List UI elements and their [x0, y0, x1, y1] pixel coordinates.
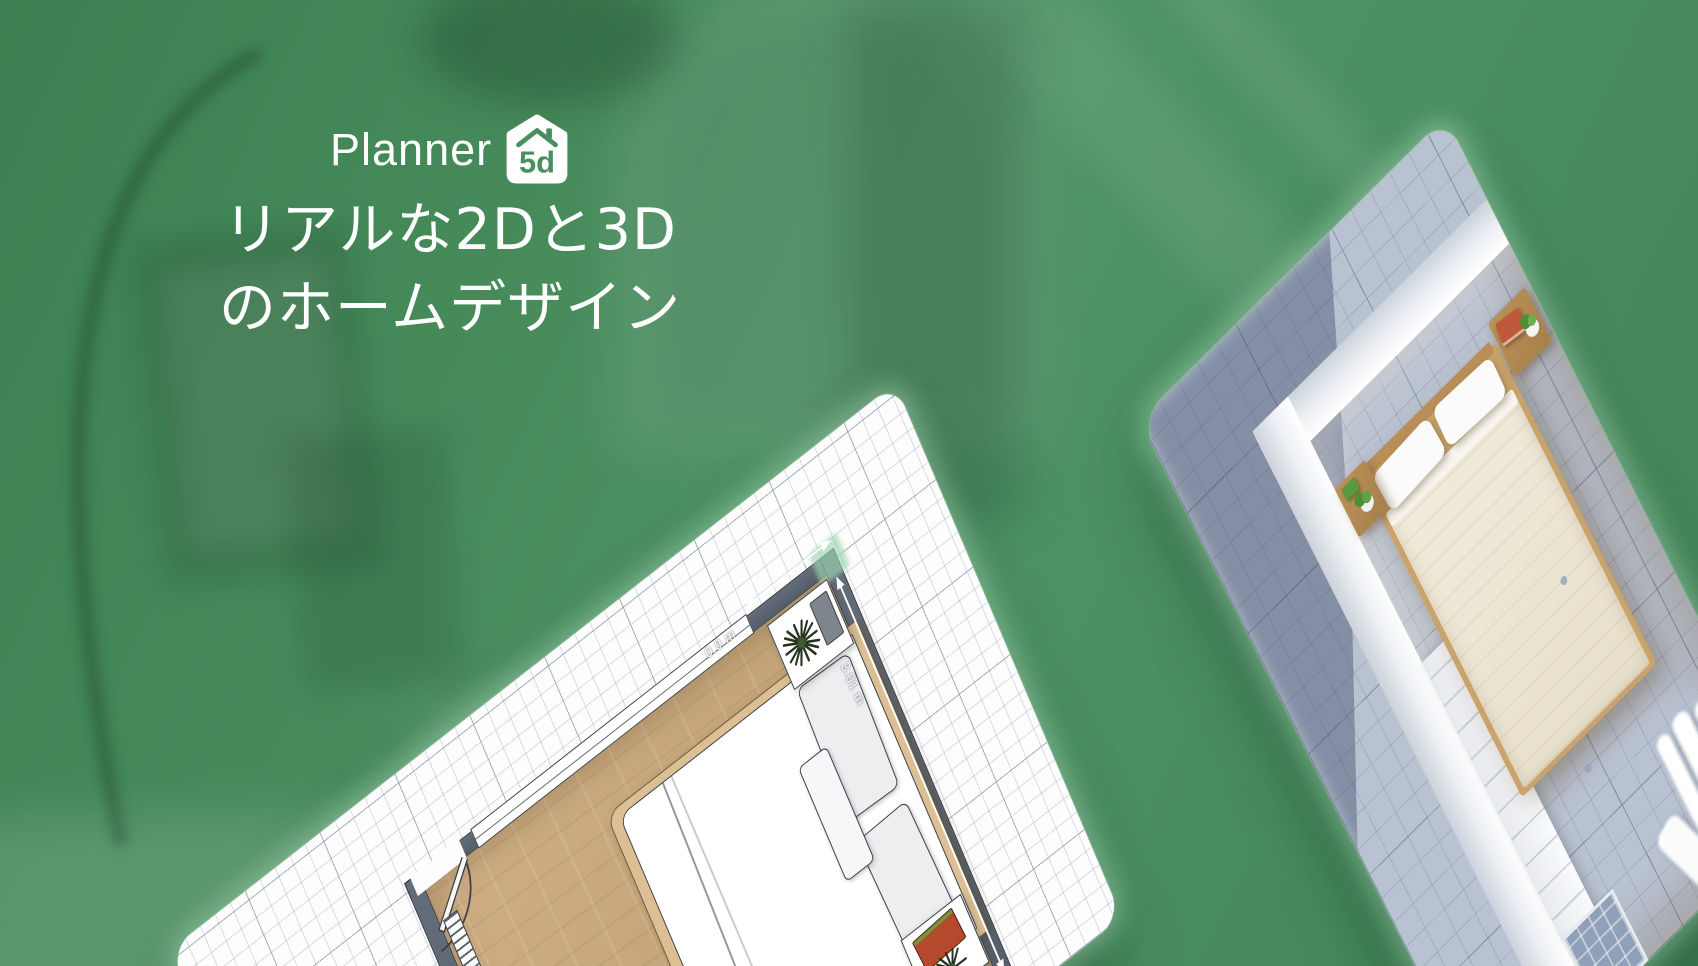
house-badge-icon: 5d [505, 114, 569, 184]
hero-banner: 0.9 m 3.01 m [0, 0, 1698, 966]
headline-line1: リアルな2Dと3D [110, 192, 790, 270]
picture-frame-blur [286, 425, 464, 696]
badge-text: 5d [519, 145, 555, 180]
floorplan-2d-card: 0.9 m 3.01 m [170, 383, 1122, 966]
render-3d-card [1140, 117, 1698, 966]
planner5d-logo: Planner 5d [330, 114, 569, 184]
lamp-shade-blur [420, 0, 680, 105]
headline-line2: のホームデザイン [110, 270, 790, 348]
brand-name: Planner [330, 127, 492, 172]
headline: リアルな2Dと3D のホームデザイン [110, 192, 790, 347]
